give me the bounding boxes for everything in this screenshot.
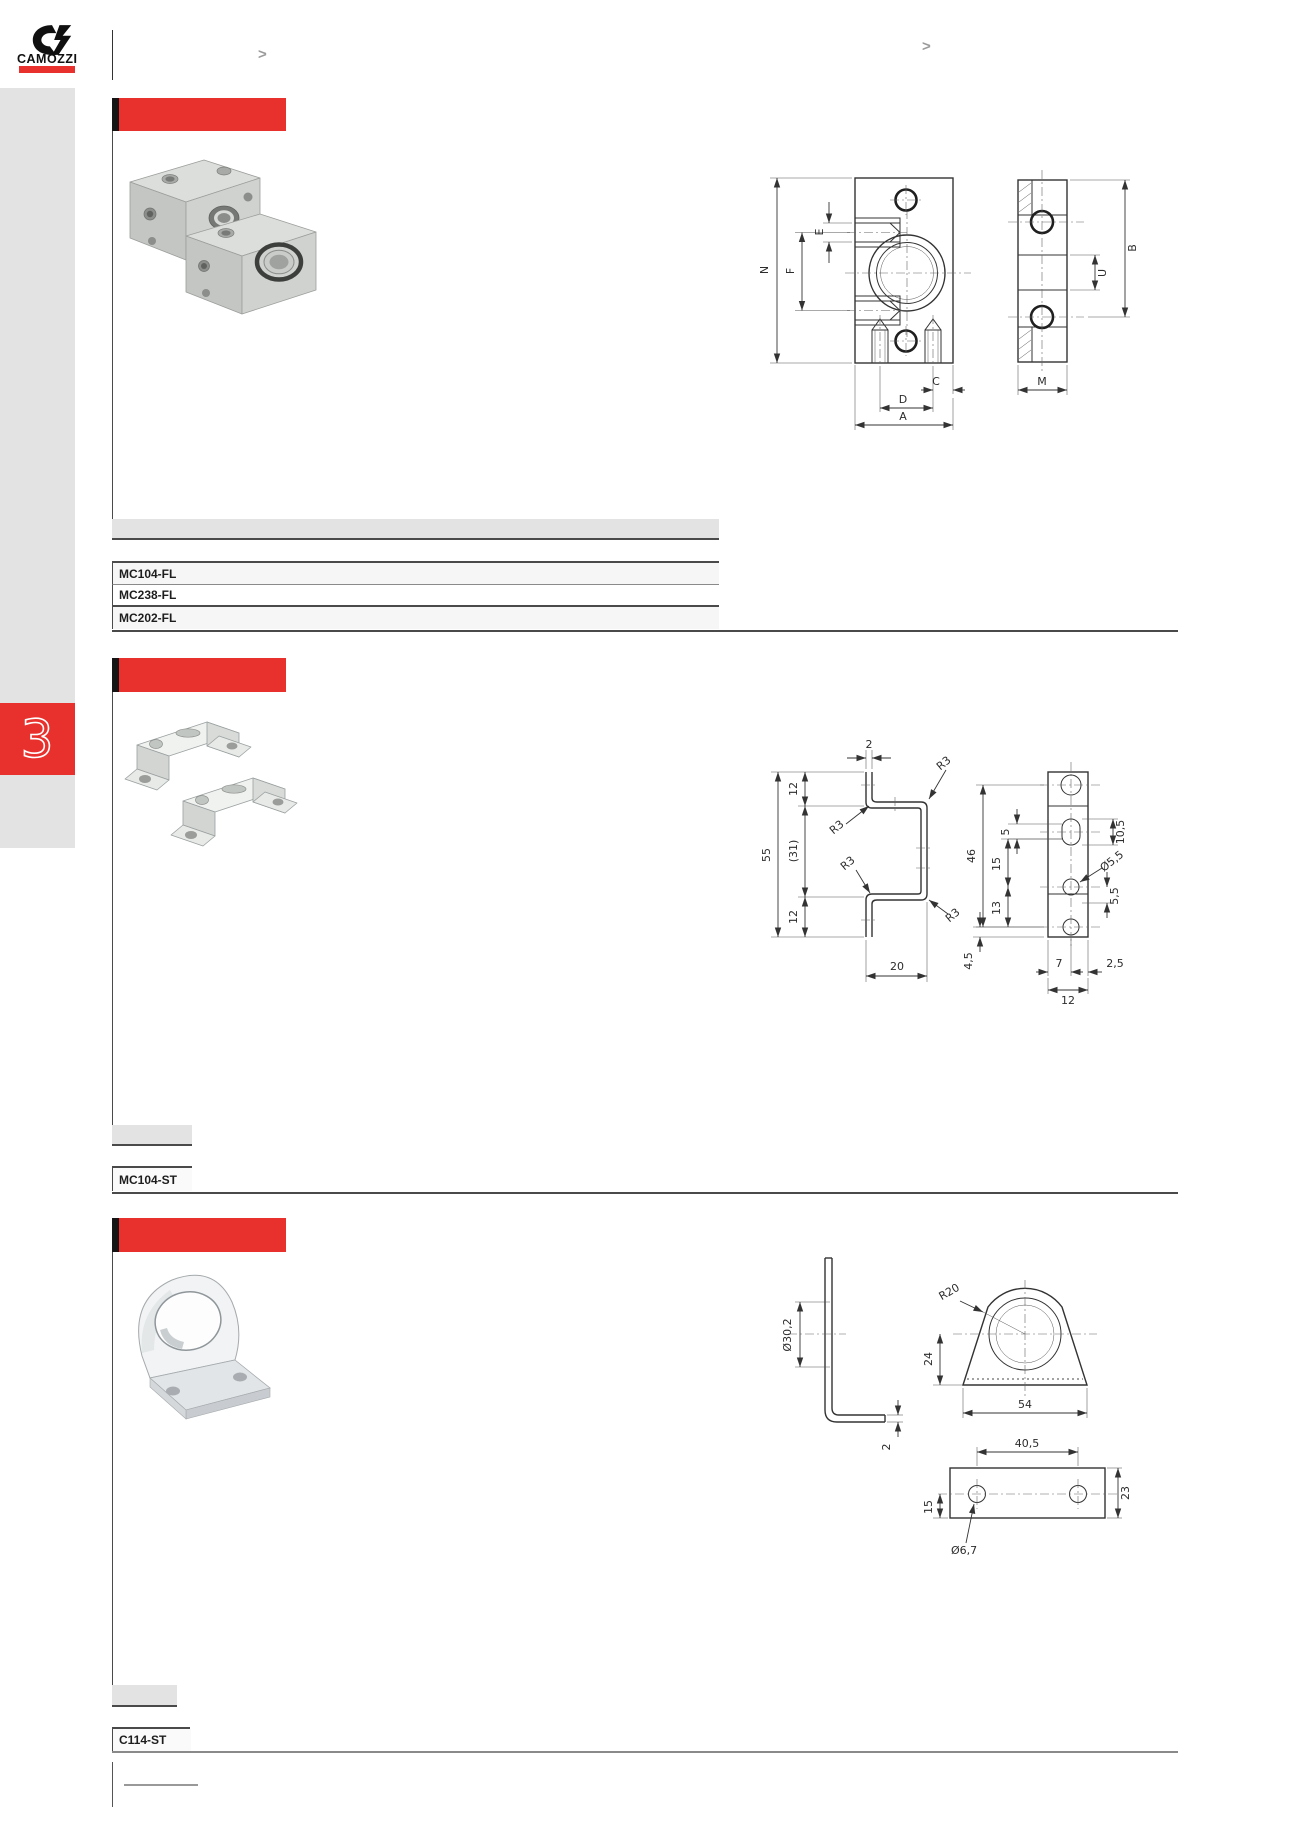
dim-23: 23 — [1119, 1486, 1132, 1500]
section-angle-rule — [112, 1751, 1178, 1753]
dim-55: 55 — [760, 848, 773, 862]
dim-D: D — [899, 393, 907, 406]
table-row: MC238-FL — [112, 585, 719, 607]
chapter-number: 3 — [20, 710, 53, 770]
dim-12-bottom: 12 — [787, 910, 800, 924]
breadcrumb-chevron-right: > — [922, 38, 931, 55]
flange-table-header — [112, 519, 719, 540]
angle-table: C114-ST — [112, 1685, 191, 1751]
ubracket-technical-drawing: 2 55 (31) 12 12 R3 R3 R3 R3 20 — [740, 720, 1160, 1020]
dim-R3-d: R3 — [943, 906, 963, 925]
dim-2-5: 2,5 — [1106, 957, 1124, 970]
section-flange-titlebar — [112, 98, 286, 131]
dim-R3-a: R3 — [934, 754, 954, 773]
catalog-page: CAMOZZI > > 3 — [0, 0, 1300, 1839]
chapter-tab: 3 — [0, 703, 75, 775]
dim-dia-5-5: Ø5,5 — [1098, 848, 1127, 874]
titlebar-notch — [112, 1218, 119, 1252]
dim-A: A — [899, 410, 907, 423]
dim-R3-b: R3 — [827, 818, 847, 837]
dim-C: C — [932, 375, 940, 388]
dim-5: 5 — [999, 829, 1012, 836]
brand-underline — [19, 66, 75, 73]
dim-2: 2 — [866, 738, 873, 751]
dim-46: 46 — [965, 849, 978, 863]
section-flange-rule — [112, 630, 1178, 632]
dim-31: (31) — [787, 840, 800, 863]
dim-20: 20 — [890, 960, 904, 973]
ubracket-product-photo — [112, 700, 302, 868]
angle-technical-drawing: Ø30,2 2 R20 24 54 40,5 15 2 — [770, 1255, 1150, 1565]
dim-54: 54 — [1018, 1398, 1032, 1411]
flange-technical-drawing: N F E C D A — [740, 140, 1190, 440]
angle-table-gap — [112, 1707, 190, 1729]
product-code: MC104-ST — [119, 1173, 177, 1187]
product-code: MC238-FL — [119, 588, 176, 602]
dim-40-5: 40,5 — [1015, 1437, 1040, 1450]
flange-table: MC104-FL MC238-FL MC202-FL — [112, 519, 719, 629]
dim-U: U — [1096, 269, 1109, 277]
flange-table-gap — [112, 540, 719, 563]
table-row: MC202-FL — [112, 607, 719, 629]
table-row: MC104-ST — [112, 1168, 192, 1191]
dim-15: 15 — [990, 857, 1003, 871]
dim-13: 13 — [990, 901, 1003, 915]
header-divider — [112, 30, 113, 80]
footer-rule — [124, 1784, 198, 1786]
section-angle-titlebar — [112, 1218, 286, 1252]
dim-15: 15 — [922, 1500, 935, 1514]
brand-name: CAMOZZI — [17, 52, 77, 66]
dim-R3-c: R3 — [838, 854, 858, 873]
dim-12-top: 12 — [787, 782, 800, 796]
table-row: C114-ST — [112, 1729, 191, 1751]
dim-F: F — [784, 268, 797, 274]
dim-12: 12 — [1061, 994, 1075, 1007]
table-row: MC104-FL — [112, 563, 719, 585]
product-code: C114-ST — [119, 1733, 166, 1747]
section-ubracket-titlebar — [112, 658, 286, 692]
dim-R20: R20 — [937, 1281, 962, 1303]
dim-E: E — [813, 228, 826, 235]
dim-dia-30-2: Ø30,2 — [781, 1318, 794, 1351]
angle-table-header — [112, 1685, 177, 1707]
dim-N: N — [758, 266, 771, 274]
product-code: MC202-FL — [119, 611, 176, 625]
dim-5-5: 5,5 — [1108, 887, 1121, 905]
product-code: MC104-FL — [119, 567, 176, 581]
dim-B: B — [1126, 244, 1139, 252]
angle-product-photo — [112, 1258, 287, 1453]
dim-4-5: 4,5 — [962, 952, 975, 970]
dim-2: 2 — [880, 1444, 893, 1451]
flange-product-photo — [112, 140, 352, 330]
ubracket-table: MC104-ST — [112, 1125, 192, 1191]
breadcrumb-chevron-left: > — [258, 46, 267, 63]
dim-M: M — [1037, 375, 1047, 388]
dim-10-5: 10,5 — [1114, 820, 1127, 845]
section-ubracket-rule — [112, 1192, 1178, 1194]
dim-7: 7 — [1056, 957, 1063, 970]
titlebar-notch — [112, 658, 119, 692]
footer-tick — [112, 1762, 113, 1807]
dim-dia-6-7: Ø6,7 — [951, 1544, 977, 1557]
ubracket-table-header — [112, 1125, 192, 1146]
ubracket-table-gap — [112, 1146, 192, 1168]
dim-24: 24 — [922, 1352, 935, 1366]
titlebar-notch — [112, 98, 119, 131]
